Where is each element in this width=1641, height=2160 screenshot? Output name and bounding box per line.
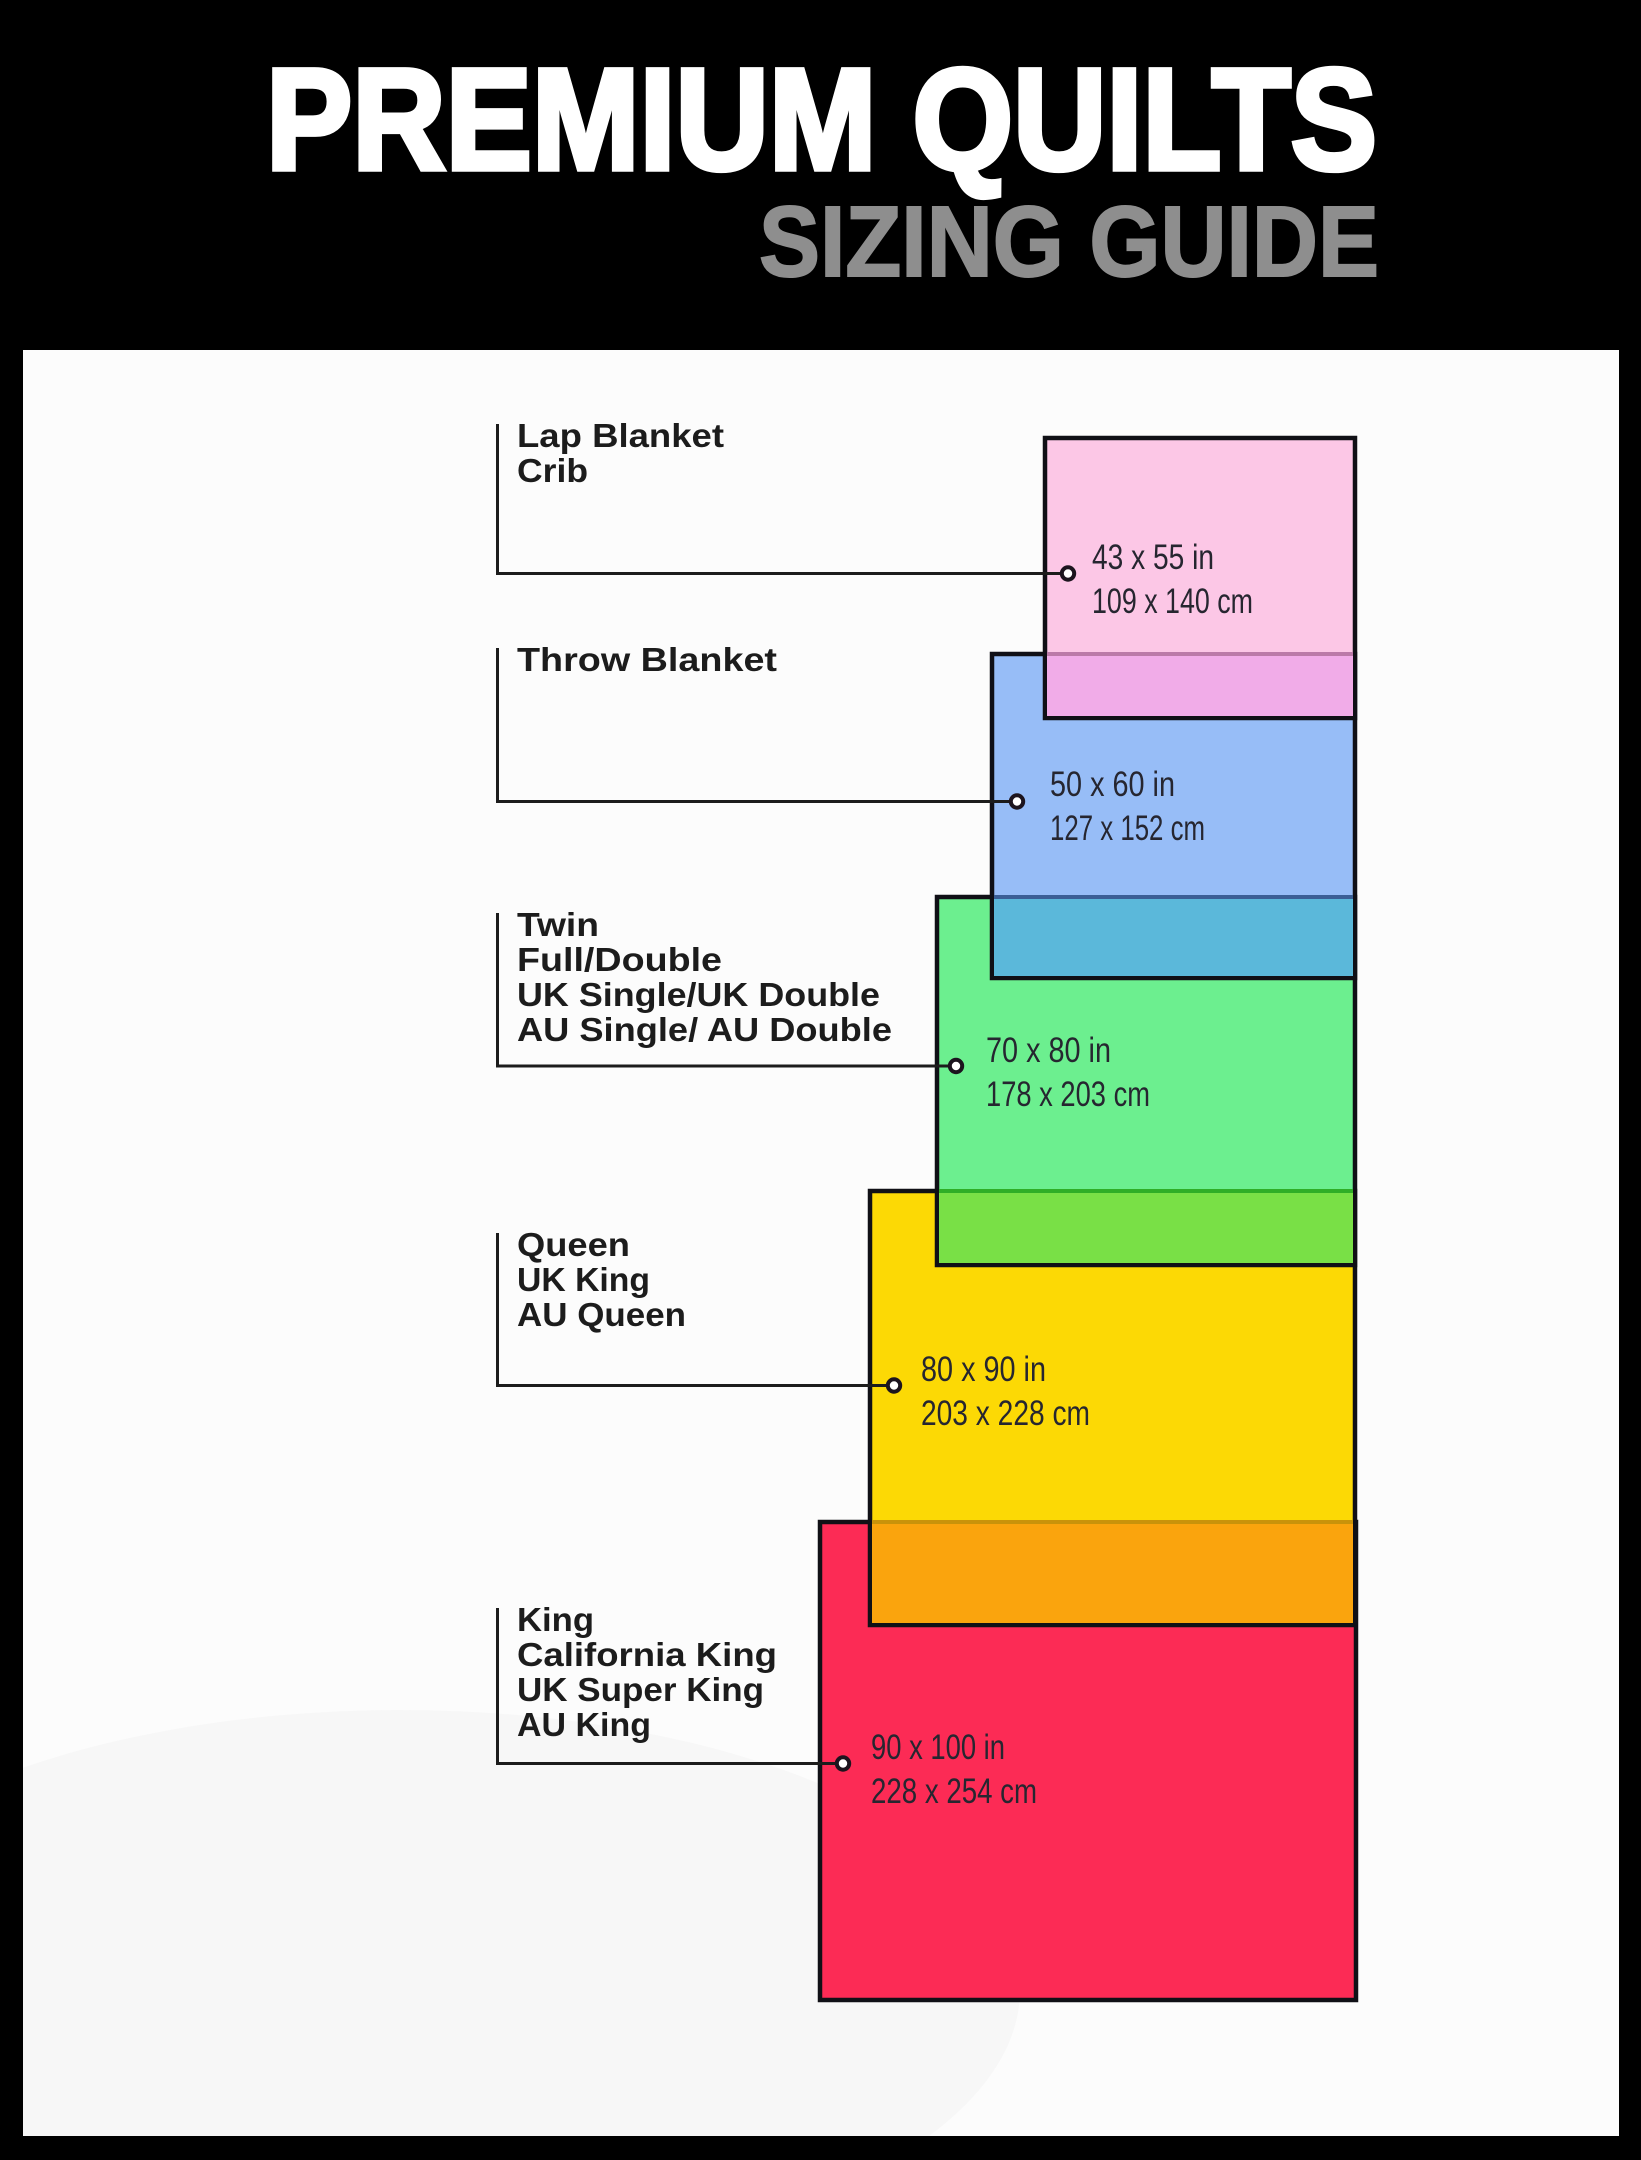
- svg-text:228 x 254 cm: 228 x 254 cm: [871, 1772, 1037, 1811]
- svg-text:UK Single/UK Double: UK Single/UK Double: [517, 976, 880, 1013]
- svg-text:SIZING GUIDE: SIZING GUIDE: [759, 186, 1379, 298]
- svg-text:109 x 140 cm: 109 x 140 cm: [1092, 582, 1253, 621]
- svg-text:Queen: Queen: [517, 1226, 630, 1263]
- svg-text:UK King: UK King: [517, 1261, 650, 1298]
- svg-text:70 x 80 in: 70 x 80 in: [986, 1031, 1111, 1070]
- svg-text:California King: California King: [517, 1636, 777, 1673]
- svg-text:Crib: Crib: [517, 452, 588, 489]
- svg-text:King: King: [517, 1601, 594, 1638]
- svg-text:Lap Blanket: Lap Blanket: [517, 417, 724, 454]
- svg-text:203 x 228 cm: 203 x 228 cm: [921, 1394, 1090, 1433]
- svg-text:80 x 90 in: 80 x 90 in: [921, 1350, 1046, 1389]
- svg-text:UK Super King: UK Super King: [517, 1671, 764, 1708]
- svg-text:90 x 100 in: 90 x 100 in: [871, 1728, 1005, 1767]
- svg-text:178 x 203 cm: 178 x 203 cm: [986, 1075, 1150, 1114]
- svg-text:AU Single/ AU Double: AU Single/ AU Double: [517, 1011, 892, 1048]
- svg-text:50 x 60 in: 50 x 60 in: [1050, 765, 1175, 804]
- svg-text:Twin: Twin: [517, 906, 599, 943]
- svg-text:43 x 55 in: 43 x 55 in: [1092, 538, 1214, 577]
- svg-text:AU Queen: AU Queen: [517, 1296, 686, 1333]
- svg-text:Full/Double: Full/Double: [517, 941, 722, 978]
- svg-text:PREMIUM QUILTS: PREMIUM QUILTS: [266, 39, 1377, 200]
- svg-text:127 x 152 cm: 127 x 152 cm: [1050, 809, 1205, 848]
- svg-text:AU King: AU King: [517, 1706, 651, 1743]
- svg-text:Throw Blanket: Throw Blanket: [517, 641, 777, 678]
